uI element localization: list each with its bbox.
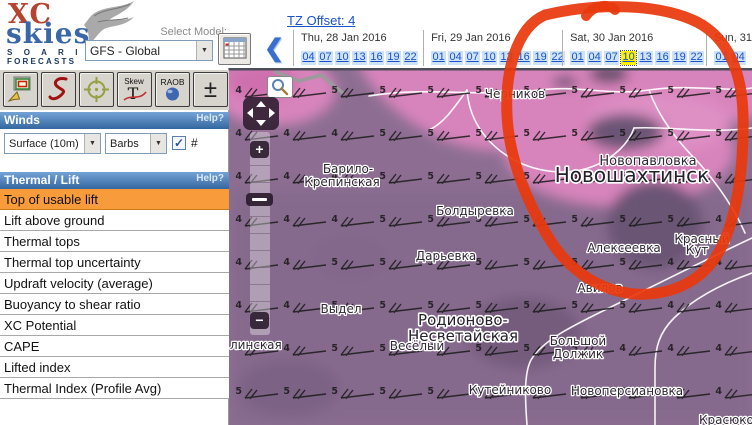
svg-text:5: 5 <box>331 85 338 96</box>
time-link[interactable]: 04 <box>587 51 602 65</box>
map-place-label: Должик <box>553 347 603 361</box>
skew-t-icon: Skew T <box>119 74 150 105</box>
svg-text:4: 4 <box>283 300 290 311</box>
svg-text:5: 5 <box>571 85 578 96</box>
model-select-value: GFS - Global <box>86 44 196 58</box>
map-place-label: Красюковская <box>699 413 752 425</box>
raob-button[interactable]: RAOB <box>155 72 190 107</box>
time-link[interactable]: 19 <box>533 51 548 65</box>
svg-text:4: 4 <box>283 171 290 182</box>
map-place-label: линская <box>230 338 282 352</box>
svg-text:5: 5 <box>283 386 290 397</box>
svg-text:4: 4 <box>235 214 242 225</box>
map-place-label: Весёлый <box>390 339 445 353</box>
magnifier-icon <box>268 77 292 97</box>
svg-text:T: T <box>128 84 139 103</box>
svg-text:RAOB: RAOB <box>160 77 184 87</box>
map-place-label: Крепинская <box>304 175 379 189</box>
map-place-label: Новошахтинск <box>555 163 710 187</box>
time-link[interactable]: 19 <box>672 51 687 65</box>
time-link[interactable]: 10 <box>482 51 497 65</box>
svg-text:5: 5 <box>571 257 578 268</box>
thermal-item[interactable]: Buoyancy to shear ratio <box>0 294 229 315</box>
svg-text:5: 5 <box>667 128 674 139</box>
pan-up-icon[interactable] <box>256 101 266 107</box>
time-link[interactable]: 13 <box>499 51 514 65</box>
time-link[interactable]: 01 <box>714 51 729 65</box>
calendar-icon <box>223 36 247 60</box>
svg-text:5: 5 <box>379 386 386 397</box>
thermal-item[interactable]: Thermal top uncertainty <box>0 252 229 273</box>
thermal-item[interactable]: Thermal tops <box>0 231 229 252</box>
map-place-label: Черников <box>485 87 546 101</box>
svg-text:4: 4 <box>667 343 674 354</box>
svg-text:5: 5 <box>427 386 434 397</box>
logo-skies: skies <box>6 21 90 47</box>
svg-text:4: 4 <box>283 257 290 268</box>
winds-help-link[interactable]: Help? <box>196 113 224 124</box>
date-strip: Thu, 28 Jan 201604071013161922Fri, 29 Ja… <box>293 30 752 66</box>
svg-text:4: 4 <box>715 214 722 225</box>
thermal-item[interactable]: Lifted index <box>0 357 229 378</box>
logo-forecasts: FORECASTS <box>7 57 76 66</box>
map-place-label: Кут <box>686 243 709 257</box>
thermal-menu: Top of usable liftLift above groundTherm… <box>0 189 229 399</box>
map-place-label: Кутейниково <box>469 383 551 397</box>
date-label: Sun, 31 <box>714 32 752 44</box>
zoom-slider-track[interactable] <box>250 132 270 335</box>
svg-text:5: 5 <box>427 171 434 182</box>
map-place-label: Выдел <box>320 302 361 316</box>
date-column: Sat, 30 Jan 20160104071013161922 <box>562 30 706 66</box>
date-label: Thu, 28 Jan 2016 <box>301 32 423 44</box>
draw-route-button[interactable] <box>41 72 76 107</box>
time-link[interactable]: 13 <box>352 51 367 65</box>
thermal-item[interactable]: Thermal Index (Profile Avg) <box>0 378 229 399</box>
time-link[interactable]: 04 <box>301 51 316 65</box>
zoom-slider-handle[interactable] <box>246 193 273 206</box>
route-s-icon <box>43 74 74 105</box>
time-link[interactable]: 13 <box>638 51 653 65</box>
svg-text:5: 5 <box>523 257 530 268</box>
time-link[interactable]: 22 <box>403 51 418 65</box>
svg-text:4: 4 <box>715 386 722 397</box>
svg-text:±: ± <box>204 76 217 103</box>
svg-text:4: 4 <box>715 343 722 354</box>
time-link[interactable]: 19 <box>386 51 401 65</box>
wind-style-select[interactable]: Barbs ▼ <box>105 133 167 154</box>
time-link-selected[interactable]: 10 <box>621 51 636 65</box>
time-link[interactable]: 16 <box>655 51 670 65</box>
plus-minus-button[interactable]: ± <box>193 72 228 107</box>
map-place-label: Алексеевка <box>587 241 661 255</box>
forecast-map: 4455555555544455555555444555555544445555… <box>229 68 752 425</box>
svg-text:5: 5 <box>475 257 482 268</box>
crosshair-button[interactable] <box>79 72 114 107</box>
svg-text:5: 5 <box>571 214 578 225</box>
svg-text:5: 5 <box>475 300 482 311</box>
thermal-item[interactable]: Updraft velocity (average) <box>0 273 229 294</box>
svg-text:4: 4 <box>235 128 242 139</box>
svg-text:5: 5 <box>475 128 482 139</box>
wind-numbers-checkbox[interactable]: ✓ <box>172 136 186 150</box>
svg-text:5: 5 <box>619 85 626 96</box>
map-place-label: Новоперсиановка <box>571 384 683 398</box>
wind-level-select[interactable]: Surface (10m) ▼ <box>4 133 101 154</box>
crosshair-icon <box>81 74 112 105</box>
svg-text:5: 5 <box>427 128 434 139</box>
back-arrow-button[interactable]: ❮ <box>264 36 284 62</box>
map-canvas[interactable]: 4455555555544455555555444555555544445555… <box>229 68 752 425</box>
skew-t-button[interactable]: Skew T <box>117 72 152 107</box>
winds-title: Winds <box>4 113 40 127</box>
thermal-help-link[interactable]: Help? <box>196 173 224 184</box>
svg-text:5: 5 <box>379 257 386 268</box>
svg-text:5: 5 <box>715 128 722 139</box>
chevron-down-icon: ▼ <box>84 134 100 153</box>
svg-text:5: 5 <box>235 386 242 397</box>
svg-text:5: 5 <box>379 171 386 182</box>
model-select[interactable]: GFS - Global ▼ <box>85 40 213 61</box>
thermal-item[interactable]: Lift above ground <box>0 210 229 231</box>
thermal-item[interactable]: CAPE <box>0 336 229 357</box>
svg-text:5: 5 <box>523 300 530 311</box>
svg-text:5: 5 <box>523 128 530 139</box>
select-model-label: Select Model: <box>100 26 227 38</box>
svg-text:4: 4 <box>619 343 626 354</box>
svg-text:5: 5 <box>619 257 626 268</box>
svg-text:5: 5 <box>379 128 386 139</box>
wind-style-value: Barbs <box>106 138 150 150</box>
chevron-down-icon: ▼ <box>150 134 166 153</box>
svg-text:5: 5 <box>619 214 626 225</box>
svg-text:5: 5 <box>427 214 434 225</box>
svg-text:4: 4 <box>283 128 290 139</box>
time-link[interactable]: 01 <box>570 51 585 65</box>
date-label: Fri, 29 Jan 2016 <box>431 32 562 44</box>
svg-text:4: 4 <box>715 257 722 268</box>
tz-offset-link[interactable]: TZ Offset: 4 <box>287 13 355 28</box>
xcskies-app: XC skies S O A R I N G FORECASTS Select … <box>0 0 752 425</box>
svg-text:5: 5 <box>523 214 530 225</box>
map-place-label: Барило- <box>323 162 373 176</box>
svg-text:4: 4 <box>235 300 242 311</box>
time-link[interactable]: 04 <box>731 51 746 65</box>
wind-level-value: Surface (10m) <box>5 138 84 150</box>
svg-text:4: 4 <box>235 171 242 182</box>
sidebar: Skew T RAOB ± Help? Winds <box>0 68 229 425</box>
svg-text:5: 5 <box>619 128 626 139</box>
chevron-down-icon: ▼ <box>196 41 212 60</box>
thermal-header: Help? Thermal / Lift <box>0 172 229 189</box>
time-link[interactable]: 16 <box>369 51 384 65</box>
winds-controls: Surface (10m) ▼ Barbs ▼ ✓ # <box>0 132 229 158</box>
svg-text:5: 5 <box>475 171 482 182</box>
svg-text:5: 5 <box>379 300 386 311</box>
svg-text:5: 5 <box>571 128 578 139</box>
wind-numbers-label: # <box>191 136 198 150</box>
time-link[interactable]: 07 <box>604 51 619 65</box>
svg-text:5: 5 <box>571 300 578 311</box>
svg-text:5: 5 <box>475 85 482 96</box>
svg-text:5: 5 <box>331 343 338 354</box>
date-column: Fri, 29 Jan 20160104071013161922 <box>423 30 562 66</box>
svg-text:4: 4 <box>283 214 290 225</box>
map-place-label: Болдыревка <box>436 204 514 218</box>
thermal-item[interactable]: Top of usable lift <box>0 189 229 210</box>
select-area-icon <box>5 74 36 105</box>
svg-text:5: 5 <box>667 214 674 225</box>
date-label: Sat, 30 Jan 2016 <box>570 32 706 44</box>
svg-text:4: 4 <box>283 343 290 354</box>
svg-text:5: 5 <box>619 300 626 311</box>
svg-text:5: 5 <box>331 386 338 397</box>
svg-text:5: 5 <box>379 343 386 354</box>
svg-text:5: 5 <box>379 214 386 225</box>
svg-text:5: 5 <box>427 300 434 311</box>
svg-text:5: 5 <box>523 343 530 354</box>
toolbar: Skew T RAOB ± <box>0 70 229 110</box>
time-link[interactable]: 22 <box>689 51 704 65</box>
time-link[interactable]: 01 <box>431 51 446 65</box>
svg-text:4: 4 <box>235 257 242 268</box>
svg-text:4: 4 <box>331 128 338 139</box>
svg-text:4: 4 <box>667 300 674 311</box>
time-link[interactable]: 04 <box>448 51 463 65</box>
svg-text:5: 5 <box>523 171 530 182</box>
map-pan-control[interactable] <box>243 97 279 130</box>
svg-text:4: 4 <box>667 257 674 268</box>
thermal-item[interactable]: XC Potential <box>0 315 229 336</box>
map-place-label: Дарьевка <box>416 249 476 263</box>
select-area-button[interactable] <box>3 72 38 107</box>
zoom-out-button[interactable]: − <box>250 312 269 329</box>
pan-left-icon[interactable] <box>247 108 253 118</box>
map-place-label: Большой <box>550 334 606 348</box>
svg-text:4: 4 <box>331 214 338 225</box>
svg-text:4: 4 <box>715 171 722 182</box>
svg-text:5: 5 <box>667 85 674 96</box>
calendar-button[interactable] <box>218 33 251 65</box>
time-link[interactable]: 10 <box>335 51 350 65</box>
svg-text:5: 5 <box>331 257 338 268</box>
date-column: Thu, 28 Jan 201604071013161922 <box>293 30 423 66</box>
plus-minus-icon: ± <box>195 74 226 105</box>
svg-text:5: 5 <box>427 85 434 96</box>
date-column: Sun, 310104 <box>706 30 752 66</box>
svg-text:5: 5 <box>715 85 722 96</box>
thermal-title: Thermal / Lift <box>4 173 79 187</box>
zoom-in-button[interactable]: + <box>250 141 269 158</box>
time-link[interactable]: 07 <box>318 51 333 65</box>
map-place-label: Авилов <box>577 281 622 295</box>
pan-right-icon[interactable] <box>269 108 275 118</box>
svg-text:4: 4 <box>235 85 242 96</box>
pan-down-icon[interactable] <box>256 120 266 126</box>
time-link[interactable]: 16 <box>516 51 531 65</box>
map-search-button[interactable] <box>267 76 293 98</box>
raob-icon: RAOB <box>157 74 188 105</box>
svg-text:4: 4 <box>715 300 722 311</box>
time-link[interactable]: 07 <box>465 51 480 65</box>
winds-header: Help? Winds <box>0 112 229 129</box>
svg-text:5: 5 <box>379 85 386 96</box>
